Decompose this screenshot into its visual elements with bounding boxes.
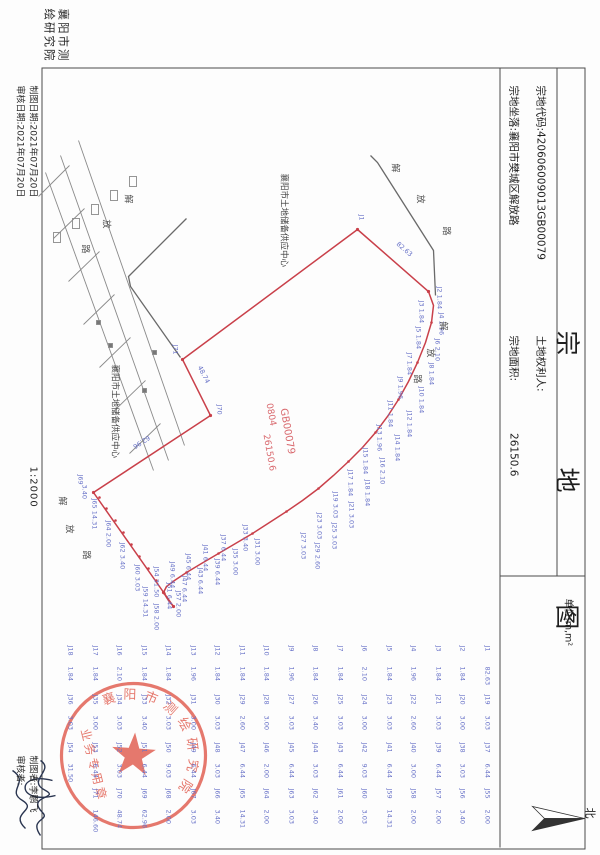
- boundary-table-entry: J633.03: [287, 788, 294, 823]
- map-point-label: J43 6.44: [196, 567, 203, 594]
- map-point-label: J18 1.84: [363, 479, 370, 506]
- map-point-label: J23 3.03: [315, 512, 322, 539]
- map-point-label: J3 1.84: [417, 300, 424, 323]
- boundary-table-entry: J582.00: [410, 788, 417, 823]
- boundary-table-col-4: J552.00J563.40J572.00J582.00J5914.31J603…: [50, 788, 500, 840]
- map-point-label: J59 14.31: [141, 586, 148, 617]
- boundary-table-entry: J462.00: [263, 742, 270, 777]
- map-point-label: 放: [64, 524, 71, 533]
- boundary-table-entry: J283.00: [263, 694, 270, 729]
- boundary-table-entry: J323.03: [165, 694, 172, 729]
- map-point-label: J7 1.84: [405, 352, 412, 375]
- boundary-table-entry: J443.03: [312, 742, 319, 777]
- boundary-table-entry: J182.63: [483, 645, 490, 685]
- boundary-table-entry: J141.84: [165, 645, 172, 680]
- occupant-label: 襄阳市土地储备供应中心: [110, 364, 117, 458]
- map-point-label: 解: [57, 496, 64, 505]
- map-point-label: J31 3.00: [253, 538, 260, 565]
- boundary-table-entry: J603.03: [361, 788, 368, 823]
- map-point-label: 路: [412, 374, 419, 383]
- map-point-label: J5 1.84: [414, 326, 421, 349]
- draw-date: 制图日期:2021年07月20日: [27, 85, 40, 197]
- map-point-label: J35 3.00: [231, 548, 238, 575]
- boundary-table-entry: J403.00: [410, 742, 417, 777]
- boundary-table-entry: J193.03: [483, 694, 490, 729]
- map-point-label: J70: [215, 404, 222, 414]
- map-point-label: J12 1.84: [405, 410, 412, 437]
- map-point-label: 3.40: [80, 484, 87, 498]
- map-point-label: J16 2.10: [378, 457, 385, 484]
- boundary-table-entry: J6962.96: [140, 788, 147, 828]
- map-point-label: J1: [357, 214, 364, 220]
- map-point-label: J19 3.03: [331, 491, 338, 518]
- map-point-label: J54 31.50: [152, 566, 159, 597]
- boundary-table-entry: J642.00: [263, 788, 270, 823]
- map-point-label: J60 3.03: [133, 564, 140, 591]
- boundary-table-entry: J383.03: [459, 742, 466, 777]
- boundary-table-entry: J483.03: [214, 742, 221, 777]
- boundary-table-entry: J496.44: [189, 742, 196, 777]
- boundary-table-entry: J171.84: [91, 645, 98, 680]
- review-date: 审核日期:2021年07月20日: [14, 85, 27, 197]
- boundary-table-entry: J313.00: [189, 694, 196, 729]
- map-point-label: 82.63: [394, 240, 413, 257]
- map-point-label: J10 1.84: [417, 386, 424, 413]
- boundary-table-entry: J572.00: [434, 788, 441, 823]
- map-point-label: J33 3.40: [241, 524, 248, 551]
- boundary-table-entry: J456.44: [287, 742, 294, 777]
- map-point-label: 放: [425, 348, 432, 357]
- map-point-label: J27 3.03: [299, 532, 306, 559]
- boundary-table-col-3: J376.44J383.03J396.44J403.00J416.44J429.…: [50, 742, 500, 794]
- boundary-table-entry: J429.03: [361, 742, 368, 777]
- map-point-label: J21 3.03: [347, 501, 354, 528]
- map-point-label: 路: [80, 244, 87, 253]
- map-point-label: J65 14.31: [90, 498, 97, 529]
- boundary-table-entry: J523.03: [116, 742, 123, 777]
- boundary-table-entry: J203.00: [459, 694, 466, 729]
- boundary-table-entry: J516.44: [140, 742, 147, 777]
- map-point-label: 路: [441, 226, 448, 235]
- boundary-table-entry: J62.10: [361, 645, 368, 680]
- boundary-table-entry: J71146.60: [91, 788, 98, 832]
- boundary-table-entry: J233.03: [385, 694, 392, 729]
- map-point-label: 放: [415, 194, 422, 203]
- drafter: 制图者:李鹏飞: [27, 755, 40, 812]
- map-point-label: J71: [171, 344, 178, 354]
- boundary-table-entry: J363.03: [67, 694, 74, 729]
- boundary-table-col-2: J193.03J203.00J213.03J222.60J233.03J243.…: [50, 694, 500, 746]
- boundary-table-entry: J5431.50: [67, 742, 74, 782]
- boundary-table-entry: J292.60: [238, 694, 245, 729]
- boundary-table-entry: J563.40: [459, 788, 466, 823]
- boundary-table-entry: J436.44: [336, 742, 343, 777]
- boundary-table-entry: J91.96: [287, 645, 294, 680]
- parcel-number-label: GB00079: [279, 407, 294, 454]
- boundary-table-entry: J121.84: [214, 645, 221, 680]
- boundary-table-entry: J682.00: [165, 788, 172, 823]
- boundary-table-entry: J536.44: [91, 742, 98, 777]
- map-point-label: 62.96: [131, 433, 150, 449]
- boundary-table-entry: J111.84: [238, 645, 245, 680]
- boundary-table-entry: J673.03: [189, 788, 196, 823]
- map-point-label: J17 1.84: [346, 469, 353, 496]
- boundary-table-entry: J303.03: [214, 694, 221, 729]
- boundary-table-entry: J376.44: [483, 742, 490, 777]
- map-scale: 1:2000: [27, 466, 38, 507]
- map-point-label: J39 6.44: [213, 558, 220, 585]
- boundary-table-entry: J253.03: [336, 694, 343, 729]
- boundary-table-entry: J162.10: [116, 645, 123, 680]
- boundary-table-entry: J181.84: [67, 645, 74, 680]
- boundary-table-entry: J41.96: [410, 645, 417, 680]
- agency-name: 襄阳市测绘研究院: [42, 8, 70, 72]
- map-point-label: J57 2.00: [174, 590, 181, 617]
- map-point-label: 48.74: [195, 364, 210, 384]
- boundary-table-entry: J213.03: [434, 694, 441, 729]
- map-point-label: J8 1.84: [427, 362, 434, 385]
- map-point-label: J51 6.44: [165, 582, 172, 609]
- boundary-table-entry: J396.44: [434, 742, 441, 777]
- boundary-table-entry: J416.44: [385, 742, 392, 777]
- boundary-table-entry: J243.00: [361, 694, 368, 729]
- boundary-table-entry: J51.84: [385, 645, 392, 680]
- map-point-label: J64 2.00: [104, 520, 111, 547]
- cadastral-sheet: 宗 地 图 单位:m,m² 宗地代码:420606009013GB00079 宗…: [0, 0, 600, 855]
- map-point-label: 路: [81, 550, 88, 559]
- map-point-label: J13 1.96: [375, 424, 382, 451]
- boundary-table-entry: J151.84: [140, 645, 147, 680]
- boundary-table-entry: J353.00: [91, 694, 98, 729]
- boundary-table-entry: J623.40: [312, 788, 319, 823]
- boundary-table-entry: J7048.74: [116, 788, 123, 828]
- boundary-table-entry: J21.84: [459, 645, 466, 680]
- map-point-label: J29 2.60: [313, 542, 320, 569]
- map-point-label: 解: [123, 194, 130, 203]
- boundary-table-entry: J273.03: [287, 694, 294, 729]
- boundary-table-entry: J101.84: [263, 645, 270, 680]
- boundary-table-entry: J71.84: [336, 645, 343, 680]
- map-point-label: J62 3.40: [118, 542, 125, 569]
- boundary-table-entry: J552.00: [483, 788, 490, 823]
- boundary-table-entry: J5914.31: [385, 788, 392, 828]
- parcel-area-label: 26150.6: [261, 433, 274, 471]
- scanned-parcel-map-page: { "header": { "title": "宗 地 图", "unit_la…: [0, 0, 600, 855]
- boundary-table-entry: J31.84: [434, 645, 441, 680]
- boundary-table-entry: J81.84: [312, 645, 319, 680]
- boundary-table-entry: J333.40: [140, 694, 147, 729]
- map-point-label: J58 2.00: [152, 603, 159, 630]
- reviewer: 审核者:: [14, 755, 27, 785]
- boundary-table-entry: J476.44: [238, 742, 245, 777]
- boundary-table-entry: J612.00: [336, 788, 343, 823]
- boundary-table-entry: J6514.31: [238, 788, 245, 828]
- boundary-table-entry: J663.40: [214, 788, 221, 823]
- boundary-table-entry: J343.03: [116, 694, 123, 729]
- map-point-label: J37 6.44: [219, 534, 226, 561]
- boundary-table-entry: J131.96: [189, 645, 196, 680]
- occupant-label: 襄阳市土地储备供应中心: [279, 173, 286, 267]
- boundary-table-entry: J263.40: [312, 694, 319, 729]
- boundary-table-col-1: J182.63J21.84J31.84J41.96J51.84J62.10J71…: [50, 645, 500, 697]
- map-point-label: 解: [438, 321, 445, 330]
- map-point-label: J9 1.96: [396, 376, 403, 399]
- map-point-label: J25 3.03: [330, 522, 337, 549]
- map-point-label: 放: [101, 219, 108, 228]
- map-point-label: J14 1.84: [393, 434, 400, 461]
- map-point-label: 解: [390, 163, 397, 172]
- parcel-class-label: 0804: [264, 402, 275, 426]
- boundary-table-entry: J509.03: [165, 742, 172, 777]
- map-point-label: J15 1.84: [361, 447, 368, 474]
- map-point-label: J69: [76, 474, 83, 484]
- map-point-label: J11 1.84: [386, 400, 393, 427]
- map-point-label: J2 1.84: [435, 286, 442, 309]
- boundary-table-entry: J222.60: [410, 694, 417, 729]
